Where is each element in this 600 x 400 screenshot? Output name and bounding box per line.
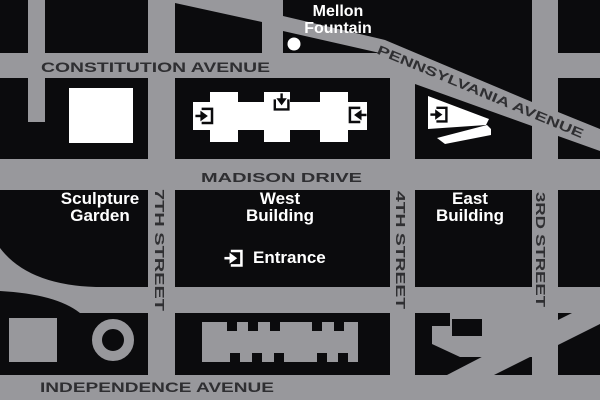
city-block	[558, 190, 600, 287]
city-block	[0, 0, 28, 53]
map-canvas: Mellon Fountain CONSTITUTION AVENUE MADI…	[0, 0, 600, 400]
city-block	[558, 313, 572, 320]
sculpture-garden-label: Garden	[70, 206, 130, 225]
mellon-fountain-label: Mellon	[313, 3, 364, 20]
building-footprint	[69, 88, 133, 143]
building-notch	[452, 319, 482, 336]
east-building-label: Building	[436, 206, 504, 225]
entrance-label: Entrance	[253, 248, 326, 267]
city-block	[175, 3, 262, 53]
city-block	[45, 0, 148, 53]
madison-drive-label: MADISON DRIVE	[201, 171, 362, 185]
fourth-street-label: 4TH STREET	[393, 191, 407, 310]
city-block	[558, 324, 600, 375]
nga-area-map: Mellon Fountain CONSTITUTION AVENUE MADI…	[0, 0, 600, 400]
independence-avenue-label: INDEPENDENCE AVENUE	[40, 380, 274, 395]
mellon-fountain-dot	[288, 38, 301, 51]
third-street-label: 3RD STREET	[533, 192, 547, 308]
seventh-street-label: 7TH STREET	[152, 189, 166, 312]
city-block	[558, 0, 600, 53]
mellon-fountain-label: Fountain	[304, 20, 372, 37]
constitution-avenue-label: CONSTITUTION AVENUE	[41, 60, 270, 75]
west-building-label: Building	[246, 206, 314, 225]
building-footprint	[9, 318, 57, 362]
